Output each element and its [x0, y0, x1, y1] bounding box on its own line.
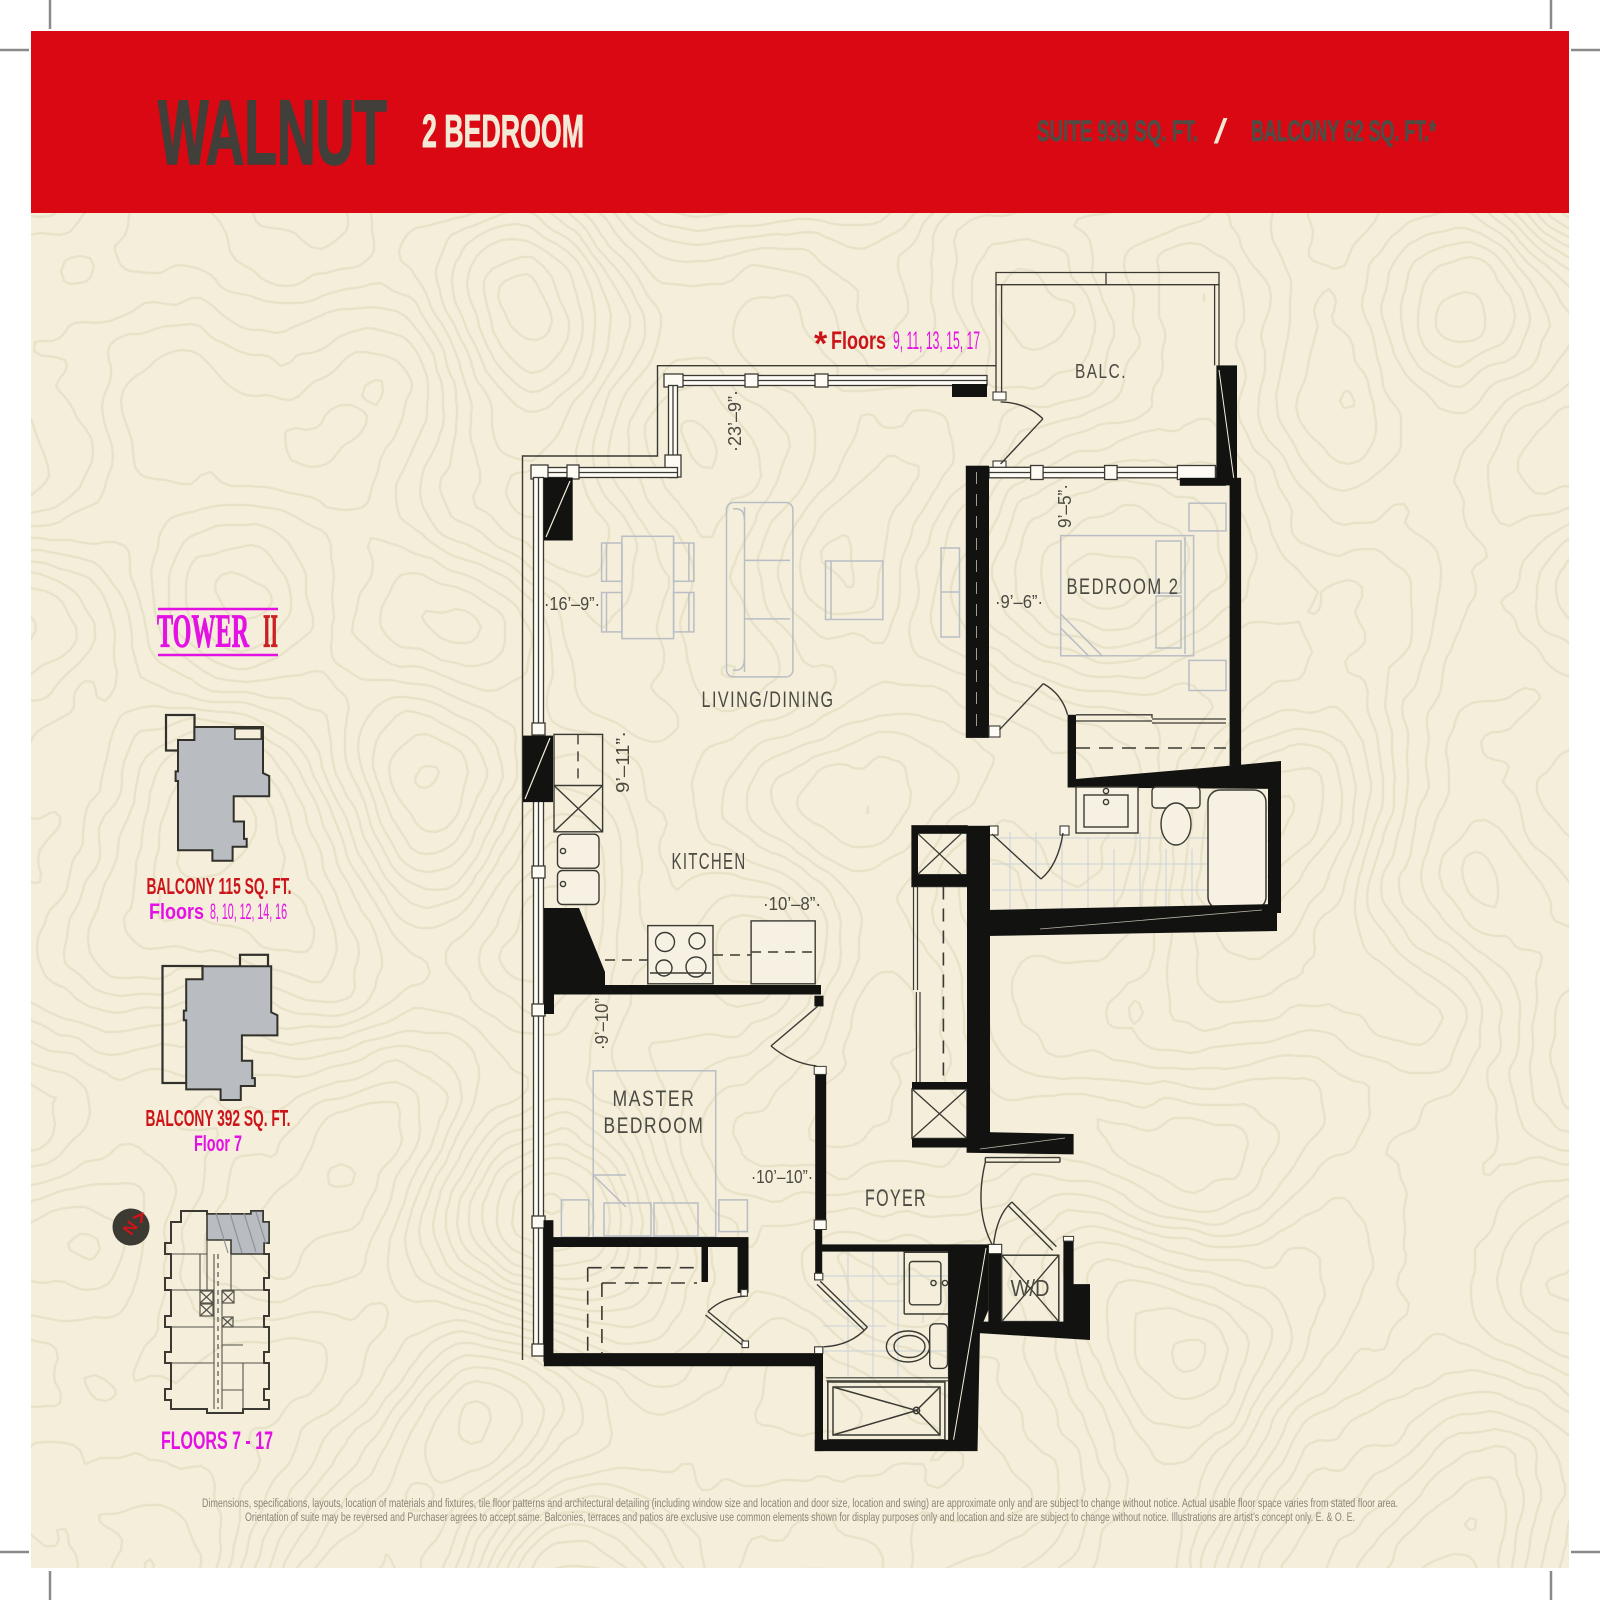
svg-text:BALCONY 392 SQ. FT.: BALCONY 392 SQ. FT.: [146, 1105, 291, 1131]
svg-text:·10’–8”·: ·10’–8”·: [763, 894, 821, 914]
svg-text:BEDROOM: BEDROOM: [604, 1113, 705, 1138]
svg-text:SUITE 939 SQ. FT.: SUITE 939 SQ. FT.: [1037, 115, 1198, 148]
svg-text:9, 11, 13, 15, 17: 9, 11, 13, 15, 17: [893, 327, 980, 355]
svg-text:LIVING/DINING: LIVING/DINING: [702, 687, 835, 712]
svg-text:Floor 7: Floor 7: [194, 1131, 242, 1156]
svg-text:Dimensions, specifications, la: Dimensions, specifications, layouts, loc…: [202, 1496, 1398, 1510]
svg-text:Orientation of suite may be re: Orientation of suite may be reversed and…: [245, 1510, 1355, 1524]
svg-text:BALCONY 115 SQ. FT.: BALCONY 115 SQ. FT.: [147, 873, 292, 899]
svg-text:·9’–10”: ·9’–10”: [592, 998, 612, 1050]
svg-text:Floors: Floors: [831, 327, 886, 355]
svg-text:TOWER: TOWER: [157, 605, 250, 658]
svg-text:*: *: [814, 325, 828, 363]
svg-text:FLOORS 7 - 17: FLOORS 7 - 17: [161, 1427, 273, 1455]
svg-text:BALC.: BALC.: [1075, 361, 1127, 383]
svg-text:·9’–6”·: ·9’–6”·: [995, 592, 1043, 612]
svg-text:BALCONY 62 SQ. FT.*: BALCONY 62 SQ. FT.*: [1251, 115, 1436, 148]
svg-text:8, 10, 12, 14, 16: 8, 10, 12, 14, 16: [210, 899, 287, 924]
svg-text:KITCHEN: KITCHEN: [672, 848, 747, 874]
svg-text:·10’–10”·: ·10’–10”·: [751, 1167, 813, 1187]
svg-text:FOYER: FOYER: [865, 1185, 927, 1212]
svg-text:·16’–9”·: ·16’–9”·: [544, 594, 600, 614]
svg-text:WALNUT: WALNUT: [158, 82, 387, 184]
svg-text:II: II: [263, 605, 278, 658]
svg-text:W/D: W/D: [1011, 1275, 1050, 1301]
svg-text:9’–5”·: 9’–5”·: [1055, 484, 1075, 528]
svg-text:BEDROOM 2: BEDROOM 2: [1067, 574, 1180, 599]
svg-text:MASTER: MASTER: [613, 1086, 696, 1111]
svg-text:9’–11”·: 9’–11”·: [613, 731, 633, 793]
svg-text:Floors: Floors: [149, 899, 204, 924]
svg-text:2 BEDROOM: 2 BEDROOM: [422, 105, 584, 157]
svg-text:·23’–9”·: ·23’–9”·: [725, 390, 745, 452]
